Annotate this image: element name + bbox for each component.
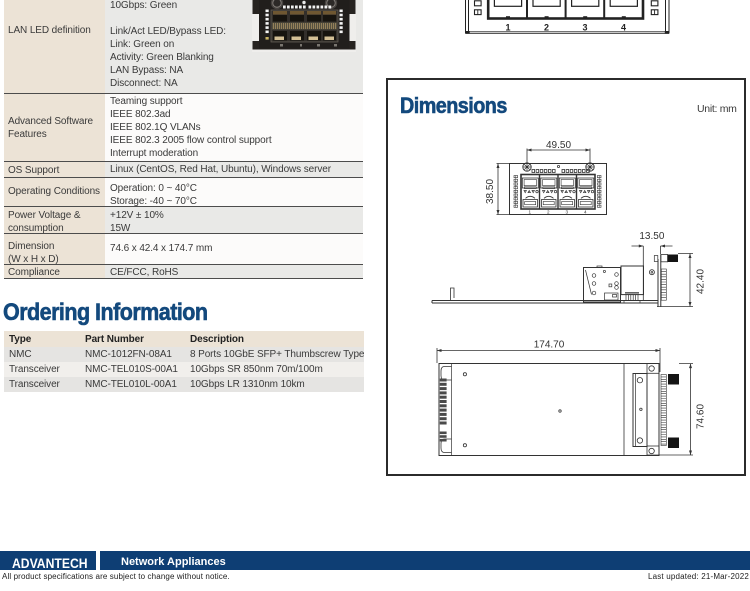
svg-text:2: 2 [547, 210, 550, 215]
svg-text:38.50: 38.50 [485, 179, 496, 204]
svg-text:13.50: 13.50 [639, 231, 664, 242]
svg-text:2: 2 [544, 23, 549, 33]
svg-text:42.40: 42.40 [696, 269, 707, 294]
svg-text:3: 3 [566, 210, 569, 215]
svg-text:1: 1 [505, 23, 510, 33]
svg-text:174.70: 174.70 [534, 340, 565, 351]
svg-text:3: 3 [582, 23, 587, 33]
svg-text:49.50: 49.50 [546, 140, 571, 151]
svg-text:4: 4 [584, 210, 587, 215]
svg-text:1: 1 [529, 210, 532, 215]
svg-text:4: 4 [621, 23, 626, 33]
svg-text:74.60: 74.60 [696, 404, 707, 429]
